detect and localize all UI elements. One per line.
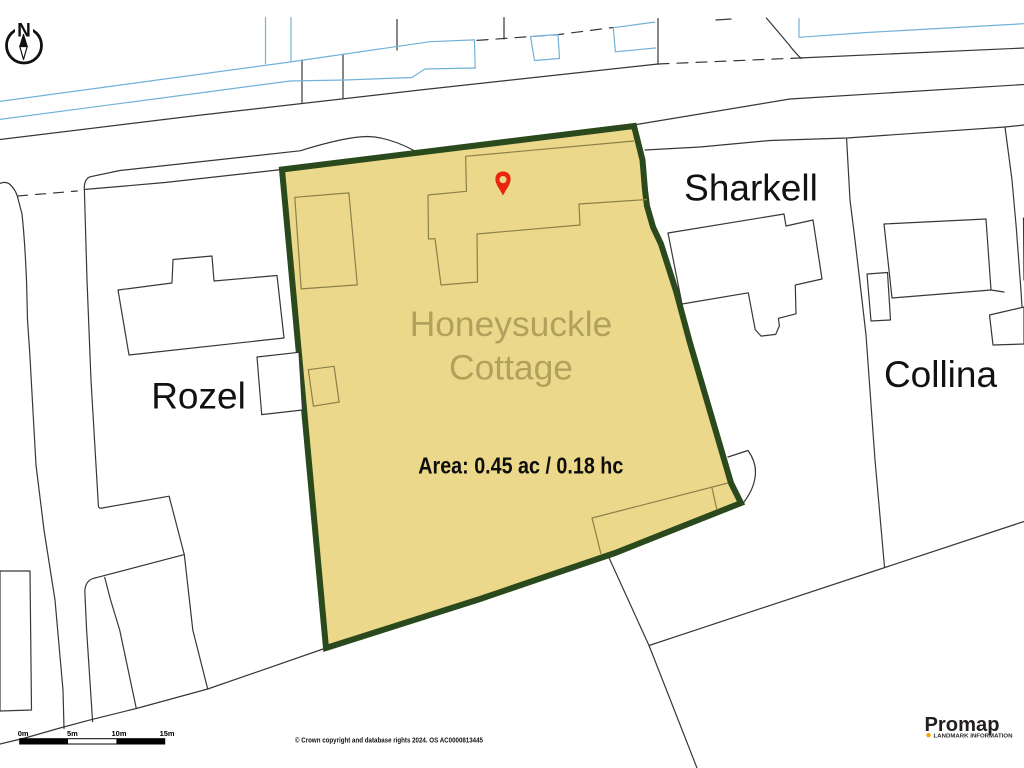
svg-text:LANDMARK INFORMATION: LANDMARK INFORMATION xyxy=(934,733,1013,739)
svg-text:Sharkell: Sharkell xyxy=(684,167,818,208)
svg-text:Collina: Collina xyxy=(884,354,998,395)
svg-text:15m: 15m xyxy=(160,729,175,738)
svg-text:5m: 5m xyxy=(67,729,78,738)
svg-text:Honeysuckle: Honeysuckle xyxy=(410,304,613,344)
svg-text:Area: 0.45 ac / 0.18 hc: Area: 0.45 ac / 0.18 hc xyxy=(418,453,623,479)
svg-text:0m: 0m xyxy=(18,729,29,738)
svg-text:© Crown copyright and database: © Crown copyright and database rights 20… xyxy=(295,737,483,745)
svg-text:Rozel: Rozel xyxy=(151,375,246,416)
svg-text:10m: 10m xyxy=(111,729,126,738)
svg-text:Cottage: Cottage xyxy=(449,348,573,388)
